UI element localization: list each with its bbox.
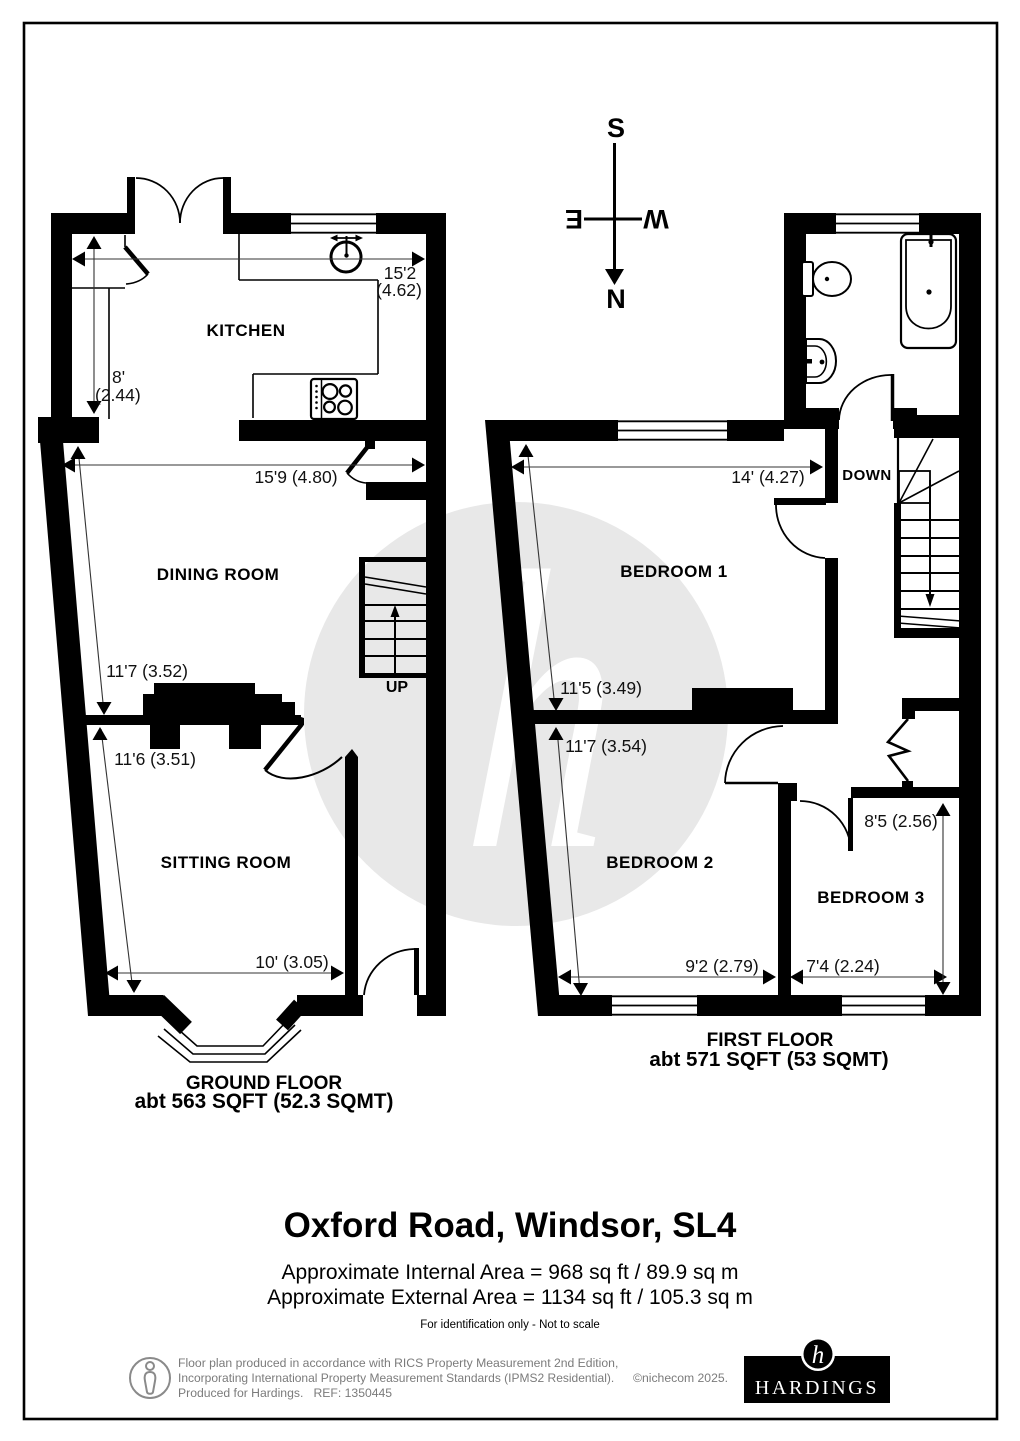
svg-text:11'7 (3.54): 11'7 (3.54) [565, 736, 647, 756]
svg-text:15'9 (4.80): 15'9 (4.80) [254, 467, 337, 487]
svg-text:Produced for Hardings. REF:: Produced for Hardings. REF: 1350445 [178, 1386, 392, 1400]
svg-text:UP: UP [386, 679, 409, 696]
svg-text:KITCHEN: KITCHEN [206, 321, 285, 340]
svg-text:Incorporating International Pr: Incorporating International Property Mea… [178, 1371, 614, 1385]
svg-text:abt 563 SQFT (52.3 SQMT): abt 563 SQFT (52.3 SQMT) [135, 1090, 394, 1113]
svg-text:DINING ROOM: DINING ROOM [157, 565, 280, 584]
svg-text:Oxford Road, Windsor, SL4: Oxford Road, Windsor, SL4 [284, 1206, 737, 1245]
svg-text:BEDROOM 2: BEDROOM 2 [606, 853, 713, 872]
svg-text:11'7 (3.52): 11'7 (3.52) [106, 661, 188, 681]
svg-text:BEDROOM 3: BEDROOM 3 [817, 888, 924, 907]
svg-text:BEDROOM 1: BEDROOM 1 [620, 562, 727, 581]
svg-text:S: S [607, 113, 625, 143]
svg-text:Floor plan produced in accorda: Floor plan produced in accordance with R… [178, 1356, 618, 1370]
svg-text:11'6 (3.51): 11'6 (3.51) [114, 749, 196, 769]
svg-text:HARDINGS: HARDINGS [755, 1377, 879, 1399]
svg-text:For identification only - Not: For identification only - Not to scale [420, 1319, 600, 1331]
svg-text:W: W [643, 204, 669, 234]
svg-text:Approximate Internal Area = 96: Approximate Internal Area = 968 sq ft / … [281, 1261, 738, 1284]
svg-text:9'2 (2.79): 9'2 (2.79) [685, 956, 758, 976]
svg-text:Approximate External Area = 11: Approximate External Area = 1134 sq ft /… [267, 1286, 753, 1309]
svg-text:abt 571 SQFT (53 SQMT): abt 571 SQFT (53 SQMT) [649, 1048, 888, 1071]
svg-text:©nichecom 2025.: ©nichecom 2025. [633, 1371, 728, 1385]
svg-text:(2.44): (2.44) [95, 385, 141, 405]
svg-text:7'4 (2.24): 7'4 (2.24) [806, 956, 879, 976]
svg-text:h: h [812, 1342, 825, 1369]
svg-text:N: N [606, 284, 626, 314]
svg-text:SITTING ROOM: SITTING ROOM [161, 853, 292, 872]
svg-text:14' (4.27): 14' (4.27) [731, 467, 804, 487]
svg-text:10' (3.05): 10' (3.05) [255, 952, 328, 972]
svg-text:11'5 (3.49): 11'5 (3.49) [560, 678, 642, 698]
svg-text:8'5 (2.56): 8'5 (2.56) [864, 811, 937, 831]
svg-text:(4.62): (4.62) [376, 280, 422, 300]
svg-text:DOWN: DOWN [842, 467, 892, 484]
svg-text:8': 8' [112, 367, 125, 387]
svg-text:E: E [565, 204, 583, 234]
